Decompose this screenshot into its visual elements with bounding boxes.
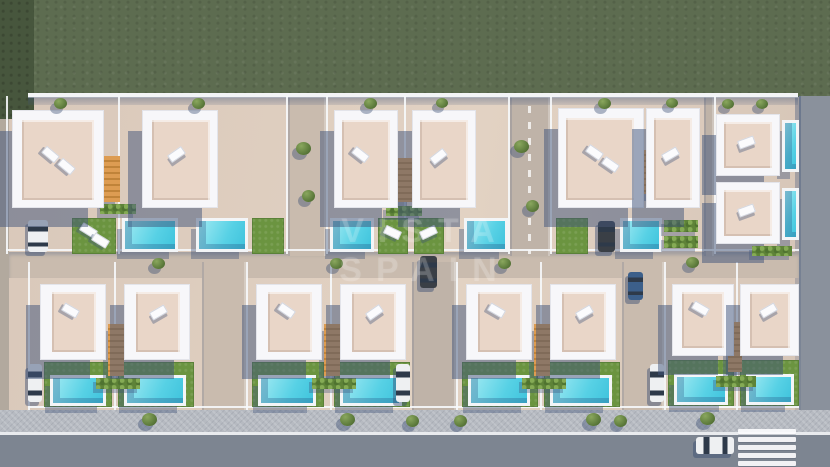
sidewalk-tree — [142, 413, 157, 426]
crosswalk-stripe — [738, 445, 796, 450]
lawn — [556, 218, 588, 254]
bush — [756, 99, 768, 109]
bush — [686, 257, 699, 268]
bush — [722, 99, 734, 109]
roof-solarium — [152, 120, 210, 200]
stair-access — [104, 156, 120, 202]
bush — [54, 98, 67, 109]
stair-access — [324, 324, 340, 376]
perimeter-wall-shadow — [28, 97, 798, 105]
swimming-pool — [330, 218, 374, 252]
bush — [152, 258, 165, 269]
grass-field-top — [0, 0, 830, 97]
upper-alley — [704, 96, 714, 256]
roof-solarium — [420, 120, 468, 200]
fence — [550, 96, 552, 254]
swimming-pool — [468, 375, 530, 406]
swimming-pool-side — [782, 188, 799, 240]
street-tree — [302, 190, 315, 202]
roof-solarium — [352, 292, 396, 352]
fence — [508, 96, 510, 254]
swimming-pool — [464, 218, 508, 252]
sidewalk-tree — [454, 415, 467, 427]
fence — [326, 96, 328, 254]
parked-van-white — [650, 364, 664, 402]
sidewalk-tree — [586, 413, 601, 426]
planter — [522, 378, 566, 389]
roof-solarium — [136, 292, 180, 352]
hedge-planter — [752, 246, 792, 256]
sidewalk-tree — [406, 415, 419, 427]
hedge-planter — [664, 220, 698, 232]
swimming-pool — [258, 375, 316, 406]
sidewalk-tree — [340, 413, 355, 426]
planter — [96, 378, 140, 389]
fence — [6, 96, 8, 254]
fence — [664, 262, 666, 410]
lawn — [252, 218, 284, 254]
stair-access — [398, 158, 412, 202]
street-tree — [514, 140, 529, 153]
street-tree — [526, 200, 539, 212]
roof-solarium — [750, 292, 790, 348]
car-on-street — [696, 437, 734, 454]
crosswalk-stripe — [738, 429, 796, 434]
aerial-render-scene: VISTA SPAIN — [0, 0, 830, 467]
sidewalk-tree — [700, 412, 715, 425]
roof-solarium — [268, 292, 312, 352]
bush — [666, 98, 678, 108]
upper-lane-1 — [288, 96, 326, 256]
sidewalk-tree — [614, 415, 627, 427]
roof-solarium — [478, 292, 522, 352]
parked-car-dark — [598, 221, 615, 252]
bush — [598, 98, 611, 109]
parked-car-white — [28, 220, 48, 252]
bush — [330, 258, 343, 269]
swimming-pool — [196, 218, 248, 252]
roof-solarium — [682, 292, 724, 348]
parked-van-white — [396, 364, 410, 402]
roof-solarium — [654, 118, 692, 200]
parked-car-white — [28, 364, 42, 402]
roof-solarium — [562, 292, 606, 352]
fence — [246, 262, 248, 410]
planter — [716, 376, 756, 387]
right-street — [799, 96, 830, 412]
central-driveway — [9, 252, 799, 278]
lane-center-marking — [528, 106, 531, 254]
parked-car-dark — [420, 256, 437, 288]
crosswalk-stripe — [738, 437, 796, 442]
fence — [456, 262, 458, 410]
swimming-pool-side — [782, 120, 799, 172]
bush — [364, 98, 377, 109]
crosswalk-stripe — [738, 461, 796, 466]
hedge-planter — [664, 236, 698, 248]
lower-lane-1 — [202, 262, 246, 410]
bush — [498, 258, 511, 269]
roof-solarium — [22, 120, 94, 200]
roof-solarium — [52, 292, 96, 352]
bush — [436, 98, 448, 108]
fence — [286, 96, 288, 254]
stair-access — [534, 324, 550, 376]
crosswalk-stripe — [738, 453, 796, 458]
swimming-pool — [122, 218, 178, 252]
parked-car-blue — [628, 272, 643, 300]
planter — [312, 378, 356, 389]
stair-access — [108, 324, 124, 376]
street-tree — [296, 142, 311, 155]
planter — [100, 204, 136, 214]
bush — [192, 98, 205, 109]
swimming-pool — [620, 218, 662, 252]
